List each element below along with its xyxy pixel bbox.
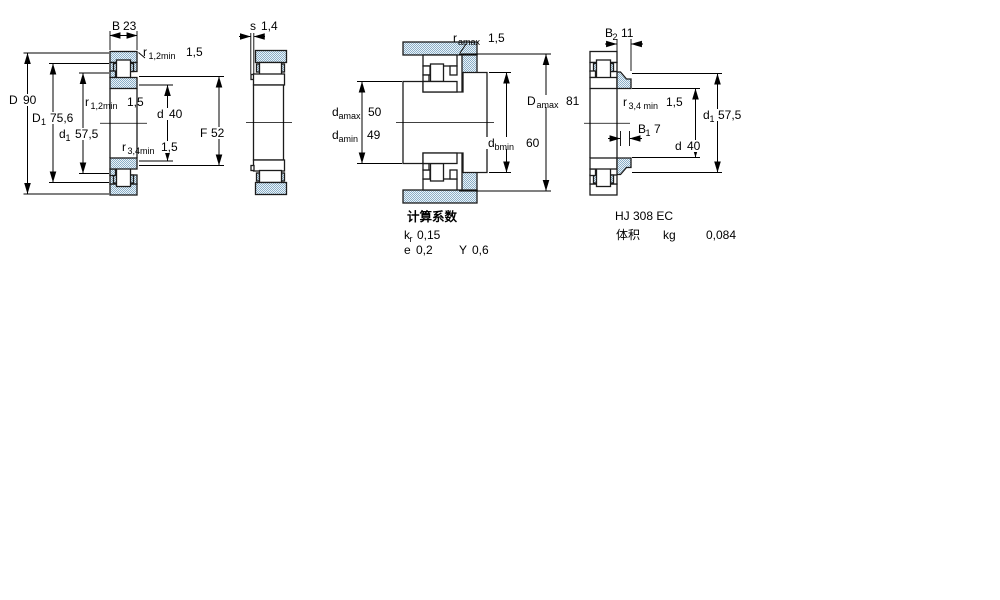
- dim-d1-ring-label: d157,5: [703, 108, 742, 124]
- dim-r34-ring-label: r3,4 min1,5: [623, 95, 683, 111]
- roller: [260, 63, 282, 75]
- calc-factors-title: 计算系数: [407, 209, 458, 224]
- dim-da: damax50 damin49: [330, 82, 402, 164]
- calc-factors-block: 计算系数 kr0,15 e0,2 Y0,6: [404, 209, 489, 257]
- dim-B1: B17: [608, 122, 661, 146]
- hj-designation: HJ 308 EC: [615, 209, 673, 223]
- roller: [597, 60, 611, 78]
- roller: [431, 64, 444, 82]
- hj-info-block: HJ 308 EC 体积 kg 0,084: [615, 209, 736, 242]
- hj-mass-value: 0,084: [706, 228, 736, 242]
- dim-r34-ring: r3,4 min1,5: [623, 95, 683, 111]
- calc-e: e0,2: [404, 243, 433, 257]
- dim-db: dbmin60: [486, 73, 541, 173]
- dim-D-label: D90: [9, 93, 37, 107]
- calc-kr: kr0,15: [404, 228, 441, 244]
- dim-r12-mid-label: r1,2min1,5: [85, 95, 144, 111]
- dim-d1-label: d157,5: [59, 127, 99, 143]
- dim-B2-label: B211: [605, 26, 634, 42]
- outer-ring: [256, 51, 287, 63]
- dim-r12-top-label: r1,2min1,5: [143, 45, 203, 61]
- inner-ring: [110, 78, 137, 89]
- calc-Y: Y0,6: [459, 243, 489, 257]
- dim-s-label: s1,4: [250, 19, 278, 33]
- dim-B1-label: B17: [638, 122, 661, 138]
- angle-ring-drawing: B211 r3,4 min1,5 d157,5 B17 d40: [584, 26, 748, 195]
- roller: [117, 60, 131, 78]
- dim-r12-top: r1,2min1,5: [139, 45, 204, 61]
- dim-r34: r3,4min1,5: [122, 140, 179, 156]
- dim-d-label: d40: [157, 107, 183, 121]
- dim-F-label: F52: [200, 126, 225, 140]
- hj-angle-ring: [617, 72, 631, 89]
- inner-ring-flange: [110, 71, 116, 78]
- side-section-drawing: s1,4: [239, 19, 292, 195]
- inner-ring: [423, 82, 457, 93]
- bearing-drawing-page: B23 r1,2min1,5 D90 D175,6 d157,5 r1,2min…: [0, 0, 1000, 600]
- dim-B: B23: [110, 19, 137, 50]
- hj-mass-unit: kg: [663, 228, 676, 242]
- hj-angle-ring: [617, 158, 631, 175]
- dim-D1: D175,6: [30, 64, 109, 183]
- dim-r12-mid: r1,2min1,5: [85, 95, 144, 111]
- inner-ring: [590, 78, 617, 89]
- dim-ra-label: ramax1,5: [453, 31, 505, 47]
- bearing-drawing-canvas: B23 r1,2min1,5 D90 D175,6 d157,5 r1,2min…: [0, 0, 1000, 600]
- hj-mass-label: 体积: [616, 228, 640, 242]
- inner-ring: [254, 74, 285, 85]
- mounting-drawing: ramax1,5 damax50 damin49 dbmin60 Damax81: [330, 31, 582, 203]
- dim-d-ring-label: d40: [675, 139, 701, 153]
- dim-B-label: B23: [112, 19, 137, 33]
- dim-D1-label: D175,6: [32, 111, 74, 127]
- dim-r34-label: r3,4min1,5: [122, 140, 178, 156]
- front-section-drawing: B23 r1,2min1,5 D90 D175,6 d157,5 r1,2min…: [7, 19, 227, 195]
